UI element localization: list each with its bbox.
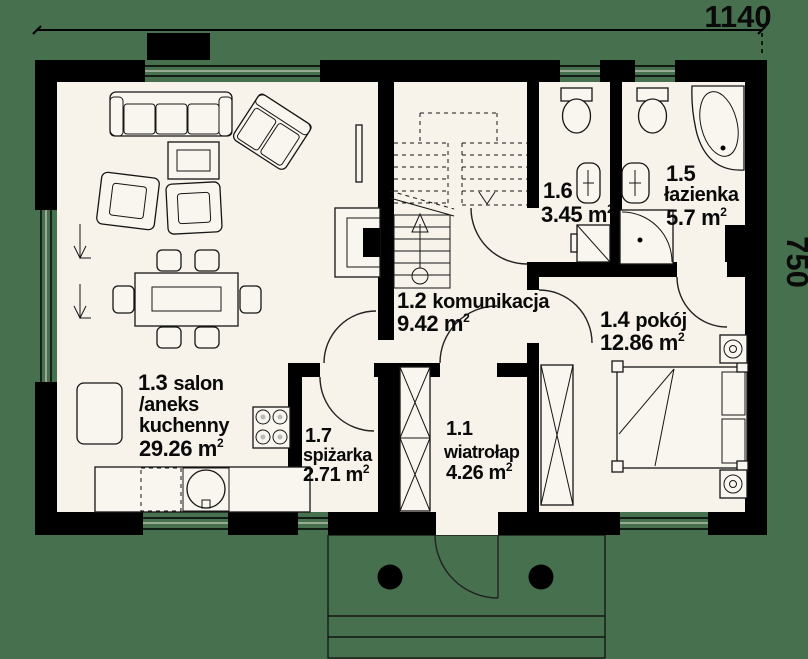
svg-text:1.5: 1.5 [666,161,696,186]
svg-text:12.86 m2: 12.86 m2 [600,330,685,355]
svg-text:1.4pokój: 1.4pokój [600,307,687,332]
stove [253,407,290,448]
duct-shaft [725,225,745,262]
window-bottom-pantry [298,512,328,535]
exterior-overhang [147,33,210,60]
svg-text:1.2komunikacja: 1.2komunikacja [397,288,550,313]
dimension-height: 750 [780,236,808,288]
window-top-wc [560,60,600,82]
svg-text:3.45 m2: 3.45 m2 [541,202,614,227]
svg-text:1.3salon: 1.3salon [138,370,224,395]
floor-plan-page: 1140 750 1.3salon /aneks kuchenny 29.26 … [0,0,808,659]
svg-text:4.26 m2: 4.26 m2 [446,460,513,484]
dimension-width: 1140 [704,0,771,34]
porch-column-left [378,565,403,590]
window-top-salon [145,60,320,82]
tv-panel [356,125,362,182]
svg-text:łazienka: łazienka [664,184,740,206]
svg-text:1.1: 1.1 [446,418,473,440]
svg-text:1.6: 1.6 [543,178,573,203]
entrance-opening [436,512,498,535]
svg-text:5.7 m2: 5.7 m2 [666,205,727,230]
svg-text:2.71 m2: 2.71 m2 [303,462,370,486]
window-bottom-kitchen [143,512,228,535]
dining-table [135,273,238,326]
window-bottom-bedroom [620,512,708,535]
armchair-1 [96,172,160,231]
toilet-bowl [563,99,591,133]
svg-text:1.7: 1.7 [305,425,332,447]
svg-text:9.42 m2: 9.42 m2 [397,311,470,336]
toilet-bowl-2 [639,99,667,133]
window-left-salon [35,210,57,382]
room-label-pokoj: 1.4pokój 12.86 m2 [600,307,687,355]
fridge [77,383,122,444]
sofa [110,92,232,136]
svg-text:/aneks: /aneks [139,394,199,416]
wardrobe-bedroom [541,365,573,505]
porch-column-right [529,565,554,590]
coffee-table [168,142,219,179]
room-label-salon: 1.3salon /aneks kuchenny 29.26 m2 [138,370,230,461]
fireplace [335,208,380,277]
bed [617,367,747,468]
window-top-bathroom [635,60,675,82]
floor-plan: 1140 750 1.3salon /aneks kuchenny 29.26 … [0,0,808,659]
svg-text:29.26 m2: 29.26 m2 [139,436,224,461]
wardrobe-hall [400,367,430,511]
svg-text:wiatrołap: wiatrołap [443,442,520,462]
armchair-2 [166,182,223,235]
svg-text:kuchenny: kuchenny [139,415,230,437]
